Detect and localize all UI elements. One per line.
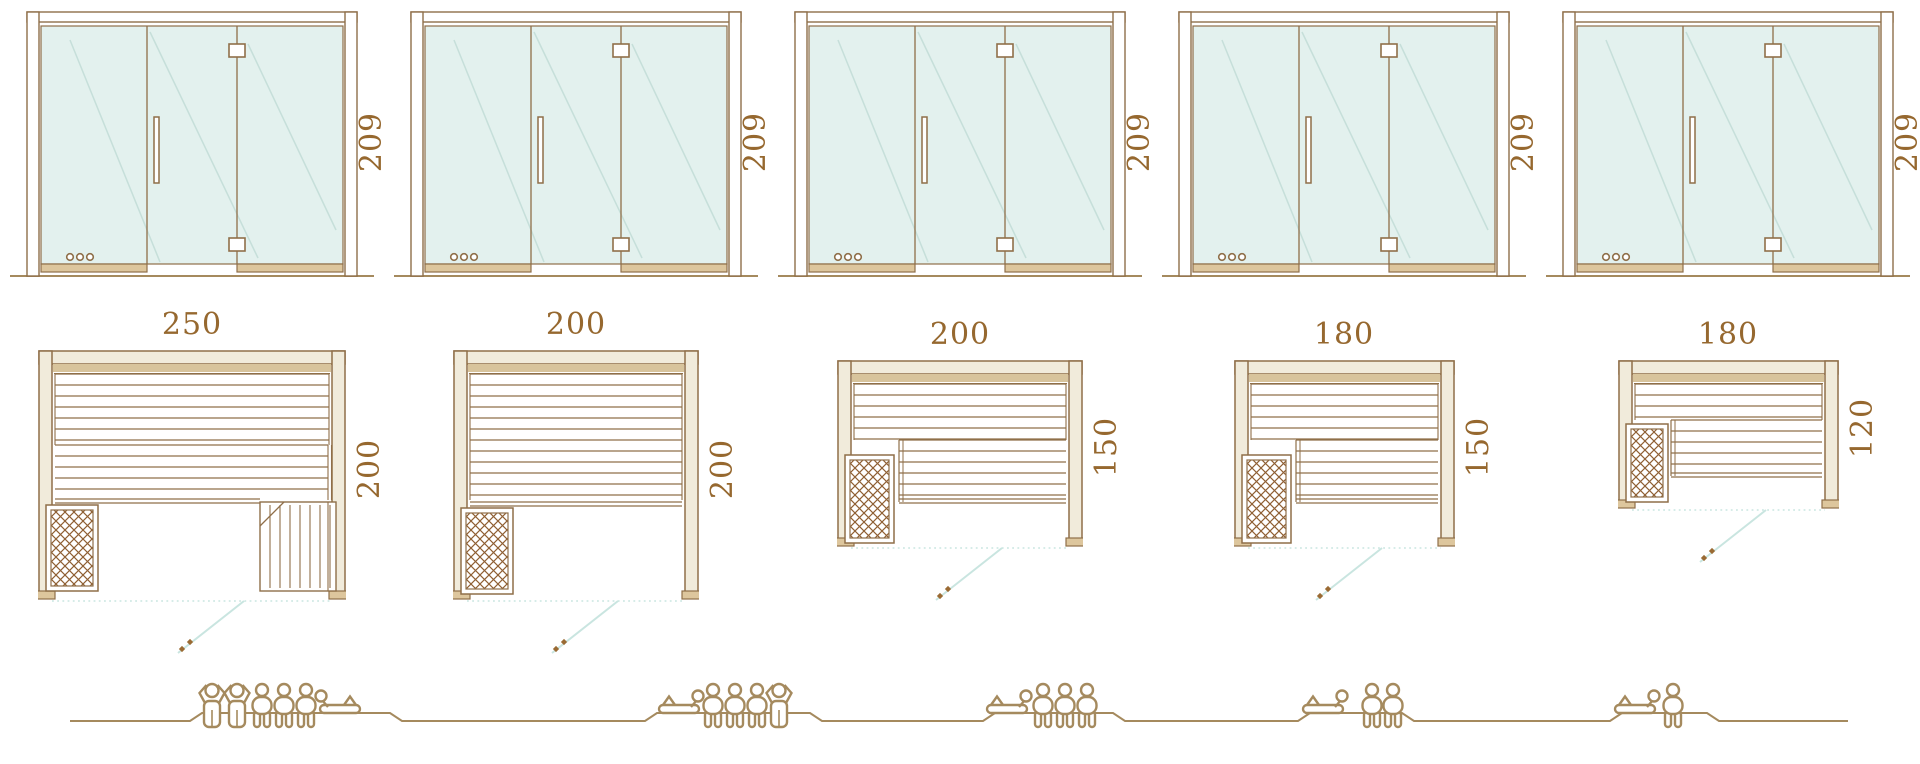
right-wall-foot <box>1438 538 1455 546</box>
frame-left-post <box>1179 12 1191 276</box>
right-wall-foot <box>1822 500 1839 508</box>
door-handle-icon <box>538 117 543 183</box>
sitting-person-icon <box>1034 684 1053 727</box>
depth-dimension-label: 120 <box>1848 398 1878 458</box>
heater-icon <box>1242 455 1291 543</box>
floor-plan <box>38 350 346 665</box>
floor-plan <box>1618 360 1839 574</box>
glass-front <box>1577 26 1879 264</box>
control-dots-icon <box>451 254 478 261</box>
right-wall-foot <box>329 591 346 599</box>
frame-top-beam <box>1179 12 1509 22</box>
glass-panel <box>41 26 343 264</box>
glass-front <box>425 26 727 264</box>
back-wall-shadow <box>53 364 331 372</box>
door-handle-icon <box>1306 117 1311 183</box>
door-hinge-icon <box>613 238 629 251</box>
door-hinge-icon <box>997 44 1013 57</box>
door-handle-icon <box>1690 117 1695 183</box>
standing-person-icon <box>767 684 792 727</box>
floor-plan <box>837 360 1083 612</box>
floor-plan <box>453 350 699 665</box>
right-wall <box>1069 361 1082 543</box>
sauna-size-comparison-diagram: 209250200 209200200 209200150 209180150 … <box>0 0 1920 764</box>
glass-panel <box>1193 26 1495 264</box>
right-wall <box>1825 361 1838 505</box>
sitting-person-icon <box>275 684 294 727</box>
glass-sill-right <box>1005 264 1111 272</box>
heater-icon <box>1626 424 1668 502</box>
back-wall-shadow <box>1633 374 1824 382</box>
control-dots-icon <box>1219 254 1246 261</box>
frame-left-post <box>1563 12 1575 276</box>
depth-dimension-label: 200 <box>355 438 385 498</box>
lying-person-icon <box>659 691 704 714</box>
door-hinge-icon <box>1765 238 1781 251</box>
floor-plan <box>1234 360 1455 612</box>
right-wall <box>1441 361 1454 543</box>
glass-sill-left <box>41 264 147 272</box>
door-elevation <box>384 0 768 284</box>
capacity-figures-strip <box>0 650 1920 764</box>
glass-sill-right <box>1773 264 1879 272</box>
capacity-group-sauna-180x120 <box>1615 684 1683 727</box>
capacity-ground-line <box>70 713 1848 721</box>
corner-bench <box>260 502 336 591</box>
depth-dimension-label: 150 <box>1464 417 1494 477</box>
standing-person-icon <box>200 684 225 727</box>
door-elevation <box>0 0 384 284</box>
back-wall <box>454 351 698 364</box>
door-hinge-icon <box>229 238 245 251</box>
sitting-person-icon <box>1078 684 1097 727</box>
door-swing-arc <box>52 601 332 653</box>
sitting-person-icon <box>297 684 316 727</box>
glass-front <box>1193 26 1495 264</box>
width-dimension-label: 180 <box>1698 320 1758 350</box>
back-wall-shadow <box>468 364 684 372</box>
height-dimension-label: 209 <box>1509 112 1539 172</box>
width-dimension-label: 180 <box>1314 320 1374 350</box>
glass-sill-left <box>425 264 531 272</box>
door-handle-icon <box>154 117 159 183</box>
capacity-group-sauna-200x150 <box>987 684 1097 727</box>
lying-person-icon <box>316 691 361 714</box>
door-elevation <box>1152 0 1536 284</box>
glass-sill-right <box>621 264 727 272</box>
door-swing-arc <box>467 601 685 653</box>
glass-sill-left <box>1577 264 1683 272</box>
back-wall <box>1235 361 1454 374</box>
lying-person-icon <box>1303 691 1348 714</box>
frame-top-beam <box>411 12 741 22</box>
glass-sill-left <box>809 264 915 272</box>
door-hinge-icon <box>1765 44 1781 57</box>
heater-icon <box>461 508 513 594</box>
glass-panel <box>809 26 1111 264</box>
width-dimension-label: 200 <box>546 310 606 340</box>
sitting-person-icon <box>1664 684 1683 727</box>
door-elevation <box>1536 0 1920 284</box>
door-hinge-icon <box>1381 238 1397 251</box>
lying-person-icon <box>1615 691 1660 714</box>
control-dots-icon <box>67 254 94 261</box>
door-elevation <box>768 0 1152 284</box>
sitting-person-icon <box>1056 684 1075 727</box>
sitting-person-icon <box>748 684 767 727</box>
door-hinge-icon <box>997 238 1013 251</box>
right-wall-foot <box>682 591 699 599</box>
depth-dimension-label: 150 <box>1092 417 1122 477</box>
heater-icon <box>46 505 98 591</box>
height-dimension-label: 209 <box>1125 112 1155 172</box>
frame-left-post <box>411 12 423 276</box>
glass-front <box>41 26 343 264</box>
frame-left-post <box>27 12 39 276</box>
right-wall <box>685 351 698 596</box>
door-swing-arc <box>851 548 1069 600</box>
right-wall-foot <box>1066 538 1083 546</box>
standing-person-icon <box>225 684 250 727</box>
width-dimension-label: 250 <box>162 310 222 340</box>
height-dimension-label: 209 <box>1893 112 1920 172</box>
back-bench-slats <box>470 374 682 506</box>
glass-front <box>809 26 1111 264</box>
door-hinge-icon <box>229 44 245 57</box>
door-swing-arc <box>1632 510 1825 562</box>
control-dots-icon <box>1603 254 1630 261</box>
height-dimension-label: 209 <box>357 112 387 172</box>
capacity-group-sauna-250x200 <box>200 684 361 727</box>
frame-left-post <box>795 12 807 276</box>
width-dimension-label: 200 <box>930 320 990 350</box>
door-hinge-icon <box>1381 44 1397 57</box>
back-wall-shadow <box>852 374 1068 382</box>
frame-top-beam <box>1563 12 1893 22</box>
glass-panel <box>425 26 727 264</box>
capacity-group-sauna-180x150 <box>1303 684 1403 727</box>
glass-sill-left <box>1193 264 1299 272</box>
sitting-person-icon <box>704 684 723 727</box>
frame-top-beam <box>795 12 1125 22</box>
capacity-group-sauna-200x200 <box>659 684 792 727</box>
door-hinge-icon <box>613 44 629 57</box>
sitting-person-icon <box>253 684 272 727</box>
height-dimension-label: 209 <box>741 112 771 172</box>
sitting-person-icon <box>1363 684 1382 727</box>
sitting-person-icon <box>1384 684 1403 727</box>
depth-dimension-label: 200 <box>708 438 738 498</box>
glass-panel <box>1577 26 1879 264</box>
door-swing-arc <box>1248 548 1441 600</box>
frame-top-beam <box>27 12 357 22</box>
back-wall-shadow <box>1249 374 1440 382</box>
lying-person-icon <box>987 691 1032 714</box>
control-dots-icon <box>835 254 862 261</box>
left-wall-foot <box>38 591 55 599</box>
glass-sill-right <box>237 264 343 272</box>
back-wall <box>838 361 1082 374</box>
back-wall <box>1619 361 1838 374</box>
back-wall <box>39 351 345 364</box>
door-handle-icon <box>922 117 927 183</box>
sitting-person-icon <box>726 684 745 727</box>
glass-sill-right <box>1389 264 1495 272</box>
heater-icon <box>845 455 894 543</box>
